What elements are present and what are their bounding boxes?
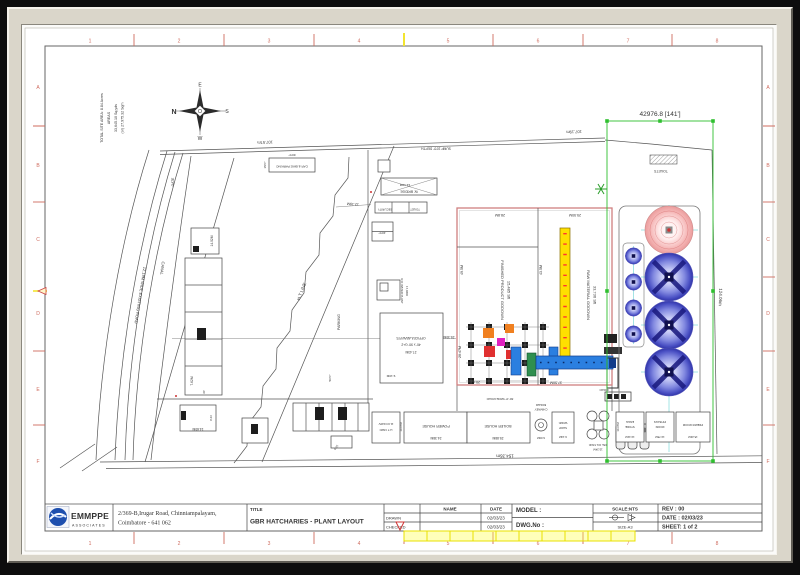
godown-building bbox=[457, 208, 616, 386]
dim-1524b: 15.24M bbox=[688, 435, 698, 439]
ruler-bottom-2: 2 bbox=[178, 541, 181, 547]
row-drawn: DRAWN bbox=[386, 516, 401, 521]
ruler-bottom-3: 3 bbox=[268, 541, 271, 547]
dim-60ft: 60'0" bbox=[289, 153, 296, 157]
dim-2047: 20.47M bbox=[458, 346, 462, 358]
dim-1067b: 10.67M bbox=[616, 422, 620, 432]
drawn-date: 02/03/23 bbox=[487, 516, 505, 521]
label-parking: PARKING bbox=[337, 314, 341, 330]
conveyor-head bbox=[609, 358, 616, 368]
dim-1341: 13.41M bbox=[625, 435, 635, 439]
label-office-1: OFFICE/LAB/W.R'S bbox=[396, 336, 426, 340]
ruler-top-6: 6 bbox=[537, 39, 540, 45]
selection-dimension: 42976.8 [141'] bbox=[640, 111, 681, 118]
label-raw-godown: RAW MATERIAL GODOWN bbox=[586, 270, 591, 320]
dim-15ft: 15'0" bbox=[263, 162, 267, 169]
dim-2550: 25.50M bbox=[569, 213, 581, 217]
bucket-elevator-1 bbox=[511, 347, 521, 375]
label-gate: GATE bbox=[171, 177, 175, 187]
ruler-right-c: C bbox=[766, 237, 770, 243]
viewer-window: 1 2 3 4 5 6 7 8 1 2 3 4 5 6 7 8 A B C D … bbox=[0, 0, 800, 575]
ruler-top-1: 1 bbox=[89, 39, 92, 45]
area-note-1: TOTAL SITE AREA: 8.84 Acres bbox=[100, 93, 104, 143]
dim-288: 28.8M bbox=[495, 213, 505, 217]
compass-n: N bbox=[171, 109, 176, 116]
label-dsl-tank: DSL OIL TANK bbox=[589, 443, 608, 447]
machine-red-1 bbox=[484, 346, 495, 357]
label-ht-yard-2: H.T YARD bbox=[380, 428, 393, 432]
checked-date: 02/03/23 bbox=[487, 525, 505, 530]
silo-blue-1 bbox=[645, 253, 693, 301]
col-name: NAME bbox=[443, 507, 456, 512]
ruler-top-3: 3 bbox=[268, 39, 271, 45]
dim-495: 49.5M bbox=[460, 265, 464, 275]
ruler-bottom-4: 4 bbox=[358, 541, 361, 547]
area-note-3: 33,645.10 Sq.yds bbox=[114, 104, 118, 132]
label-workshop-2: SHOP bbox=[559, 426, 567, 430]
dim-600: 6.00M bbox=[536, 436, 544, 440]
dim-1402: 14.02M bbox=[210, 235, 214, 246]
dim-762: 7.62M bbox=[190, 376, 194, 385]
sheet-label: SHEET: 1 of 2 bbox=[662, 525, 697, 531]
ruler-right-f: F bbox=[766, 459, 769, 465]
silo-blue-3 bbox=[645, 348, 693, 396]
company-logo bbox=[47, 507, 69, 528]
dim-2530: 25.30M bbox=[443, 335, 454, 339]
ruler-bottom-6: 6 bbox=[537, 541, 540, 547]
size-label: SIZE-A3 bbox=[617, 525, 633, 530]
label-security: SECURITY bbox=[378, 208, 392, 212]
ruler-right-d: D bbox=[766, 311, 770, 317]
label-sump: SUMP 10'0" DEPTH bbox=[420, 147, 450, 151]
label-raw-godown-2: 33,736 Sft bbox=[593, 286, 598, 305]
dim-40ft: 40'0" bbox=[379, 231, 386, 235]
label-fin-godown: FINISHED PRODUCT GODOWN bbox=[500, 260, 505, 320]
label-ppbags-2: ROOM bbox=[655, 425, 664, 429]
ruler-bottom-5: 5 bbox=[447, 541, 450, 547]
ruler-bottom-1: 1 bbox=[89, 541, 92, 547]
ruler-left-d: D bbox=[36, 311, 40, 317]
label-fin-godown-2: 15,485 Sft bbox=[507, 281, 512, 300]
silo-red bbox=[645, 206, 693, 254]
label-ro-plant: R.O WATER PLANT bbox=[400, 278, 404, 304]
label-parking-dim: 50'0" bbox=[328, 375, 332, 382]
machine-magenta bbox=[497, 338, 505, 346]
dim-3750: 37.50M bbox=[550, 381, 562, 385]
area-note-2: AREAS bbox=[107, 111, 111, 124]
dim-30: 30' bbox=[202, 390, 206, 394]
label-ro-plant-2: 17,080lt bbox=[405, 286, 409, 296]
label-boiler-house: BOILER HOUSE bbox=[484, 424, 512, 428]
label-office-2: 40' x 90' G+2 bbox=[401, 343, 420, 347]
dim-435: 43.5M bbox=[539, 265, 543, 275]
ruler-left-f: F bbox=[36, 459, 39, 465]
label-weighbridge: W. BRIDGE bbox=[400, 190, 418, 194]
label-engg-1: ENGG bbox=[626, 420, 634, 424]
model-label: MODEL : bbox=[516, 508, 541, 514]
dim-weighbridge: 12.19M bbox=[399, 183, 410, 187]
label-premix: PREMIX ROOM bbox=[682, 423, 703, 427]
conveyor-vertical-yellow bbox=[560, 228, 570, 361]
ruler-top-7: 7 bbox=[627, 39, 630, 45]
silo-blue-2 bbox=[645, 301, 693, 349]
dim-1460: 14.60M bbox=[192, 427, 203, 431]
area-note-4: (or) 27,975.32 Sqm bbox=[121, 103, 125, 134]
label-workshop-1: WORK bbox=[559, 421, 568, 425]
title-label: TITLE bbox=[250, 507, 263, 512]
label-toilet: TOILET bbox=[410, 208, 420, 212]
ruler-bottom-8: 8 bbox=[716, 541, 719, 547]
dim-823: 8.23 bbox=[209, 415, 213, 421]
machine-green bbox=[527, 353, 536, 376]
company-subtitle: ASSOCIATES bbox=[72, 524, 106, 528]
plant-layout-drawing: 1 2 3 4 5 6 7 8 1 2 3 4 5 6 7 8 A B C D … bbox=[0, 0, 800, 575]
dim-10719: 107.19m bbox=[566, 129, 582, 135]
dim-914: 9.14M bbox=[558, 435, 566, 439]
company-name: EMMPPE bbox=[71, 511, 109, 521]
compass-w: W bbox=[198, 136, 203, 142]
dim-office: 27.43M bbox=[405, 350, 416, 354]
scale-label: SCALE:NTS bbox=[612, 507, 638, 512]
dwg-label: DWG.No : bbox=[516, 523, 544, 529]
label-engg-2: STORE bbox=[625, 425, 635, 429]
date-label: DATE : 02/03/23 bbox=[662, 516, 703, 522]
ruler-left-c: C bbox=[36, 237, 40, 243]
label-road: ROAD bbox=[599, 388, 609, 392]
label-car-bike: CAR & BIKE PARKING bbox=[275, 165, 308, 169]
label-ppbags-1: PP BAGS bbox=[654, 420, 666, 424]
ruler-bottom-7: 7 bbox=[627, 541, 630, 547]
col-date: DATE bbox=[490, 507, 502, 512]
address-line-2: Coimbatore - 641 062 bbox=[118, 521, 171, 527]
label-chimney-1: BOILER bbox=[536, 403, 546, 407]
ruler-top-8: 8 bbox=[716, 39, 719, 45]
dim-1378: 13.78M bbox=[655, 435, 665, 439]
dim-office-2: 9.10M bbox=[386, 374, 395, 378]
ruler-top-2: 2 bbox=[178, 39, 181, 45]
rev-label: REV : 00 bbox=[662, 507, 684, 513]
dim-corridor: 12.19M bbox=[347, 202, 359, 207]
machine-orange-2 bbox=[505, 324, 514, 333]
dim-12406: 124.06m bbox=[718, 288, 723, 306]
label-wide-road: 30'-0" WIDE ROAD bbox=[486, 397, 513, 401]
ruler-top-4: 4 bbox=[358, 39, 361, 45]
toilets-building bbox=[650, 155, 677, 164]
label-chimney-2: CHIMNEY bbox=[534, 408, 547, 412]
label-ht-yard: 11 KV/440V bbox=[379, 422, 394, 426]
dim-2588: 25.88M bbox=[492, 436, 503, 440]
machine-orange-1 bbox=[483, 328, 494, 338]
ruler-top-5: 5 bbox=[447, 39, 450, 45]
dim-2438: 24.38M bbox=[430, 436, 441, 440]
dim-1067: 10.67M bbox=[399, 422, 403, 432]
dim-10757: 107.57m bbox=[257, 140, 273, 146]
drawing-title: GBR HATCHARIES - PLANT LAYOUT bbox=[250, 519, 364, 526]
label-toilets: TOILETS bbox=[653, 169, 667, 173]
label-power-house: POWER HOUSE bbox=[422, 424, 450, 428]
dim-1524: 15.24M bbox=[593, 448, 603, 452]
dim-2047b: 20.47M bbox=[468, 380, 480, 384]
dim-15435: 154.35m bbox=[496, 454, 514, 459]
address-line-1: 2/369-B,Irugar Road, Chinniampalayam, bbox=[118, 511, 217, 517]
